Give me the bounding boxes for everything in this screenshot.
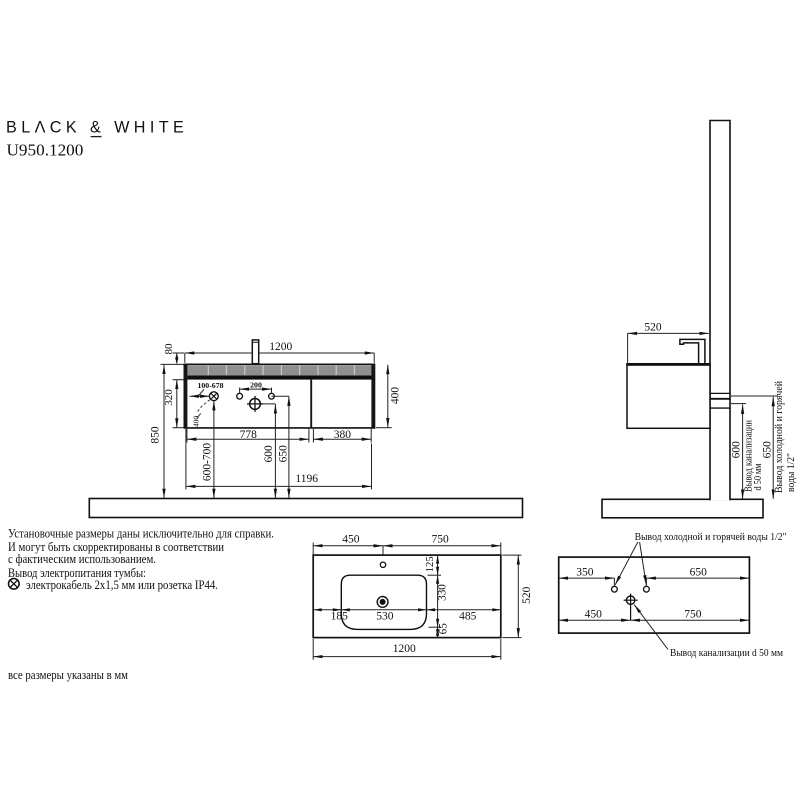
svg-text:450: 450 — [342, 534, 360, 546]
svg-text:485: 485 — [459, 610, 477, 622]
svg-text:все размеры указаны в мм: все размеры указаны в мм — [8, 667, 128, 682]
svg-text:Вывод холодной и горячей воды: Вывод холодной и горячей воды 1/2" — [635, 531, 787, 543]
svg-text:Вывод канализации d 50 мм: Вывод канализации d 50 мм — [670, 647, 783, 659]
svg-text:d 50 мм: d 50 мм — [753, 463, 764, 490]
svg-text:1196: 1196 — [295, 473, 318, 485]
svg-text:450: 450 — [585, 609, 603, 621]
svg-text:400: 400 — [191, 416, 200, 428]
svg-text:U950.1200: U950.1200 — [7, 141, 84, 160]
svg-text:750: 750 — [431, 534, 449, 546]
svg-text:380: 380 — [334, 429, 352, 441]
svg-text:125: 125 — [425, 556, 436, 572]
svg-text:600-700: 600-700 — [202, 443, 214, 482]
svg-text:185: 185 — [331, 610, 349, 622]
svg-text:778: 778 — [240, 429, 258, 441]
svg-text:350: 350 — [576, 567, 594, 579]
svg-text:320: 320 — [163, 389, 175, 406]
svg-text:Вывод холодной и горячей: Вывод холодной и горячей — [774, 381, 785, 493]
svg-text:BLΛCK & WHITE: BLΛCK & WHITE — [6, 119, 188, 137]
svg-text:воды 1/2": воды 1/2" — [786, 453, 797, 492]
svg-text:1200: 1200 — [269, 341, 292, 353]
svg-text:850: 850 — [149, 426, 161, 444]
svg-text:80: 80 — [163, 343, 175, 355]
svg-text:65: 65 — [438, 623, 450, 635]
svg-text:электрокабель 2х1,5 мм или роз: электрокабель 2х1,5 мм или розетка IP44. — [26, 577, 218, 592]
svg-text:200: 200 — [250, 380, 262, 389]
svg-text:400: 400 — [390, 387, 402, 405]
svg-text:1200: 1200 — [393, 643, 416, 655]
svg-text:650: 650 — [761, 441, 773, 459]
svg-text:100-678: 100-678 — [198, 381, 224, 390]
svg-text:330: 330 — [437, 584, 449, 601]
svg-text:520: 520 — [644, 322, 662, 334]
svg-text:600: 600 — [263, 445, 275, 463]
svg-text:650: 650 — [278, 445, 290, 463]
svg-text:650: 650 — [690, 567, 708, 579]
svg-text:520: 520 — [521, 586, 533, 604]
svg-text:750: 750 — [684, 609, 702, 621]
svg-text:600: 600 — [730, 441, 742, 459]
svg-text:530: 530 — [376, 610, 394, 622]
